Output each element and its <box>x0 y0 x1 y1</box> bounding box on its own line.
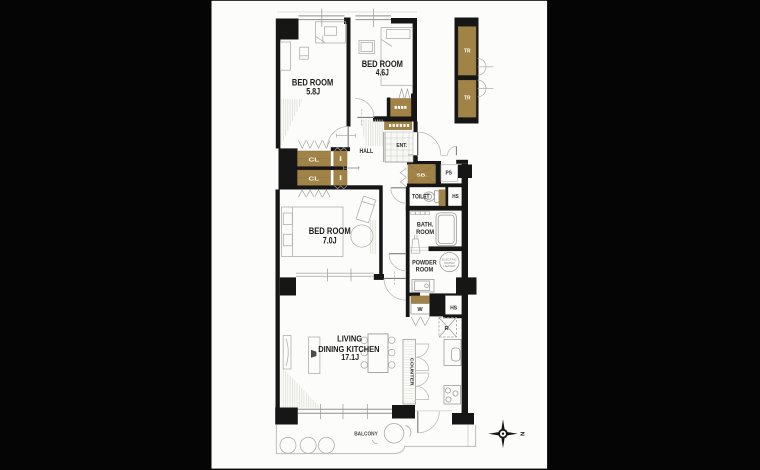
svg-text:HS: HS <box>452 194 459 200</box>
svg-text:17.1J: 17.1J <box>341 352 359 362</box>
svg-text:BATH.: BATH. <box>417 223 434 229</box>
svg-text:HS: HS <box>450 305 457 311</box>
svg-text:TR: TR <box>464 48 471 54</box>
svg-text:TOILET: TOILET <box>412 194 430 201</box>
svg-text:HALL: HALL <box>360 148 374 155</box>
svg-text:W: W <box>417 307 423 313</box>
svg-text:POWDER: POWDER <box>412 260 437 266</box>
svg-text:7.0J: 7.0J <box>323 235 337 246</box>
svg-text:HEATER: HEATER <box>443 264 456 268</box>
svg-text:5.8J: 5.8J <box>306 87 320 98</box>
svg-text:N: N <box>518 432 524 436</box>
svg-text:ENT.: ENT. <box>396 143 407 149</box>
svg-text:CL: CL <box>309 157 320 163</box>
svg-text:CL: CL <box>309 176 320 182</box>
svg-text:SB.: SB. <box>417 173 428 179</box>
svg-text:BALCONY: BALCONY <box>354 432 378 438</box>
svg-text:COUNTER: COUNTER <box>410 358 415 387</box>
svg-text:TR: TR <box>464 96 471 102</box>
svg-text:LIVING: LIVING <box>337 334 362 344</box>
svg-text:4.6J: 4.6J <box>376 68 389 79</box>
svg-text:PS: PS <box>446 171 453 177</box>
svg-text:ROOM: ROOM <box>416 267 434 273</box>
svg-text:ROOM: ROOM <box>416 230 434 236</box>
